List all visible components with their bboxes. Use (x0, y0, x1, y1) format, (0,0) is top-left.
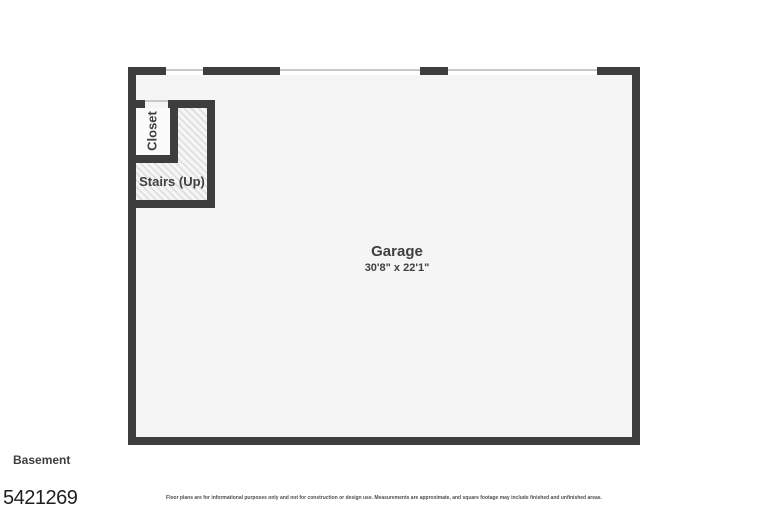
listing-id: 5421269 (3, 487, 77, 510)
window-top-1 (166, 69, 203, 71)
closet-wall-top-stub (136, 100, 145, 108)
closet-label: Closet (145, 111, 160, 151)
garage-dimensions: 30'8" x 22'1" (297, 262, 497, 275)
disclaimer-text: Floor plans are for informational purpos… (166, 495, 602, 501)
stairs-wall-bottom (136, 200, 215, 208)
exterior-wall-bottom (128, 437, 640, 445)
garage-label-block: Garage 30'8" x 22'1" (297, 243, 497, 275)
window-top-3 (448, 69, 597, 71)
closet-wall-bottom (136, 155, 178, 163)
window-top-2 (280, 69, 420, 71)
stairs-wall-right (207, 100, 215, 208)
exterior-wall-left (128, 67, 136, 445)
stairs-label: Stairs (Up) (134, 174, 210, 189)
closet-door-opening (145, 100, 168, 102)
exterior-wall-top-segment-3 (420, 67, 448, 75)
floor-level-label: Basement (13, 453, 70, 467)
exterior-wall-right (632, 67, 640, 445)
garage-label: Garage (297, 243, 497, 260)
exterior-wall-top-segment-2 (203, 67, 280, 75)
floorplan-image: Closet Stairs (Up) Garage 30'8" x 22'1" … (0, 0, 768, 512)
